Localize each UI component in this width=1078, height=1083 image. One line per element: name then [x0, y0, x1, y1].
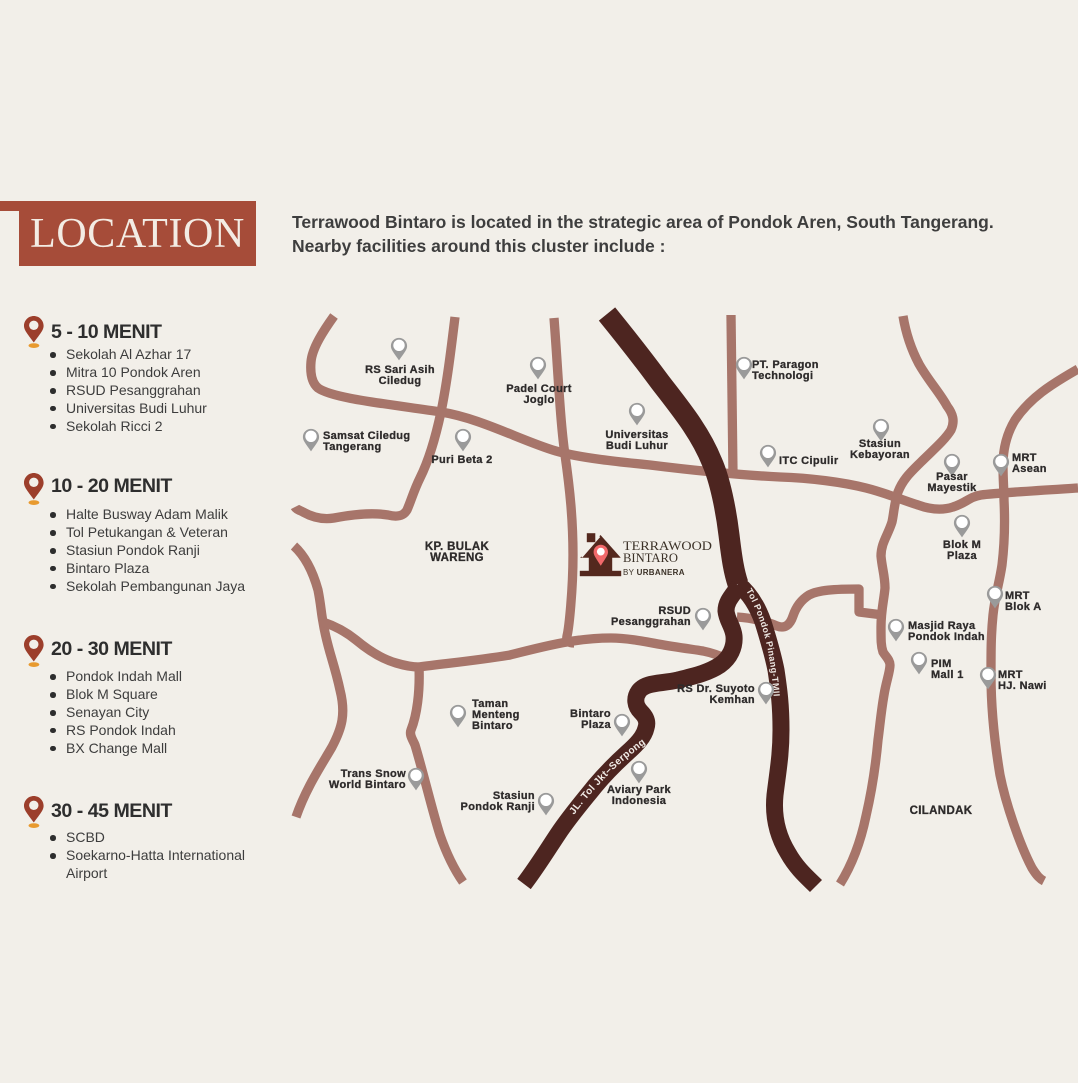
svg-text:BY URBANERA: BY URBANERA — [623, 568, 685, 577]
svg-text:BINTARO: BINTARO — [623, 550, 678, 565]
